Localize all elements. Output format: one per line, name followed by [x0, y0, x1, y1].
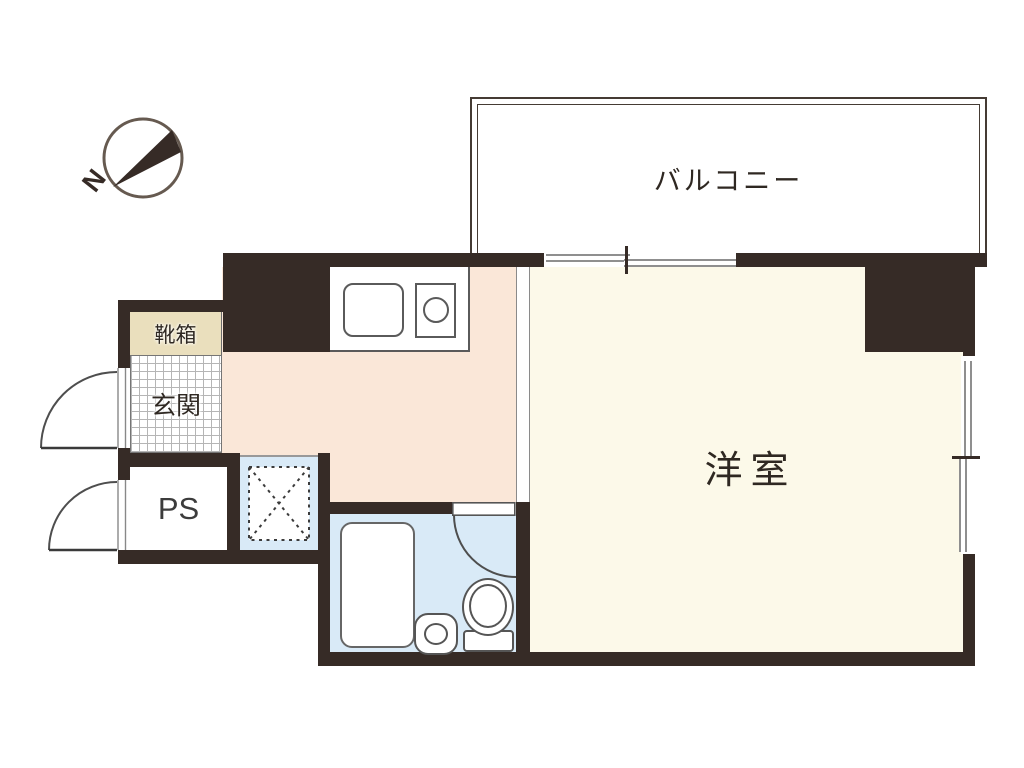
floor-plan: バルコニー 靴箱 玄関 PS	[0, 0, 1024, 768]
compass-north-icon: N	[75, 105, 195, 215]
pipe-space-door-icon	[49, 480, 126, 550]
entrance-door-icon	[41, 368, 126, 448]
western-room-label: 洋室	[530, 267, 963, 652]
bathroom-door-icon	[453, 503, 516, 577]
western-room-label-text: 洋室	[704, 439, 796, 494]
